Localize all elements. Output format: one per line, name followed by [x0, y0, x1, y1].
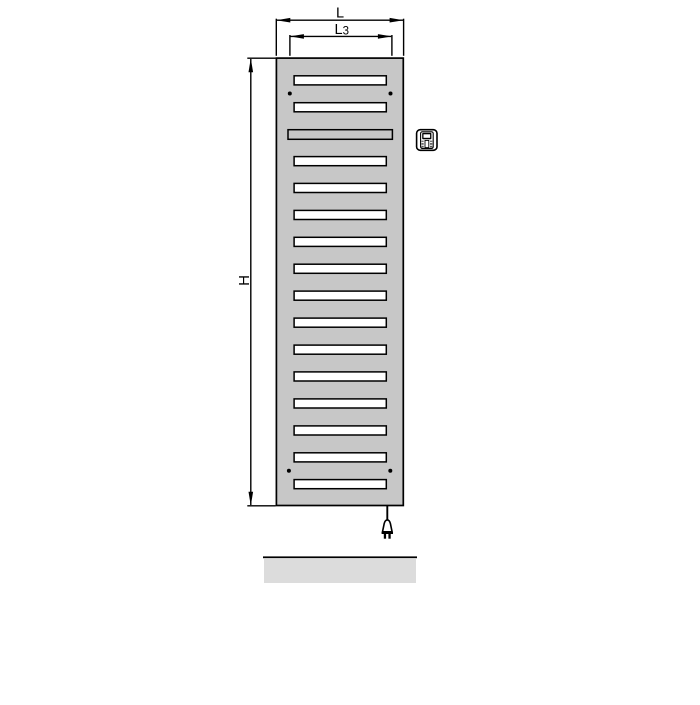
svg-text:H: H — [236, 275, 253, 286]
svg-text:L: L — [336, 5, 344, 21]
